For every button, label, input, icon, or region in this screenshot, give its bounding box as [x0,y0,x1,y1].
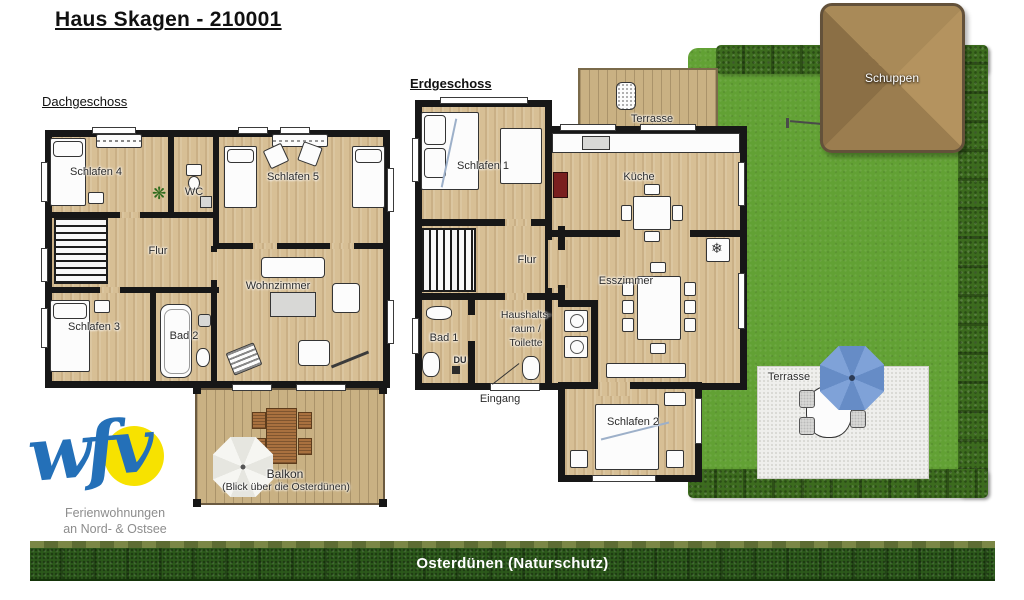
garden-terrasse-label: Terrasse [768,371,810,383]
room-label-schlafen-4: Schlafen 4 [70,166,122,178]
snowflake-icon: ❄ [711,240,723,257]
armchair [332,283,360,313]
pillow [53,303,87,319]
door-opening [100,287,120,293]
sofa [261,257,325,278]
side-table [664,392,686,406]
balkon-post [379,499,387,507]
toilet [422,352,440,377]
page-title: Haus Skagen - 210001 [55,8,282,32]
room-label-flur-dg: Flur [149,245,168,257]
garden-chair [799,417,815,435]
grill [616,82,636,110]
stairs [54,218,108,284]
room-label-wc: WC [185,186,203,198]
room-label-schlafen-3: Schlafen 3 [68,321,120,333]
garden-chair [799,390,815,408]
chair [650,262,666,273]
window [92,127,136,134]
terrace-door [738,162,745,206]
pillow [424,115,446,145]
window [387,168,394,212]
sideboard [606,363,686,378]
wall [50,287,219,293]
wall [690,230,740,237]
logo-caption-1: Ferienwohnungen [45,505,185,521]
door-opening [598,382,630,396]
balkon-chair [252,412,266,429]
toilet [186,164,202,176]
chair [644,184,660,195]
window [592,475,656,482]
garden-door [695,398,702,444]
room-label-bad-2: Bad 2 [170,330,199,342]
entrance-door [490,383,540,391]
nightstand [94,300,110,313]
room-label-flur-eg: Flur [518,254,537,266]
coffee-table [270,292,316,317]
garden-chair [850,410,866,428]
room-label-haushalt-3: Toilette [509,337,542,349]
wall [552,230,620,237]
dryer-door [570,340,584,354]
kitchen-counter [552,133,740,153]
pillow [227,149,254,163]
nightstand [88,192,104,204]
window [41,248,48,282]
wall [213,135,219,246]
toilet [196,348,210,367]
window [440,97,528,104]
sink [198,314,211,327]
chair [644,231,660,242]
room-label-schlafen-5: Schlafen 5 [267,171,319,183]
kitchen-table [633,196,671,230]
door-opening [120,212,140,218]
door-opening [253,243,277,249]
banner-hedge-top [30,541,995,548]
balkon-chair [298,412,312,429]
chair [684,318,696,332]
chair [672,205,683,221]
balkon-chair [298,438,312,455]
chair [622,300,634,314]
door-opening [505,219,531,226]
wardrobe [96,134,142,148]
sink [426,306,452,320]
room-label-kueche: Küche [623,171,654,183]
kitchen-sink [582,136,610,150]
plant-icon: ❋ [152,184,166,204]
toilet [522,356,540,380]
door-opening [330,243,354,249]
door-opening [211,252,217,280]
door-opening [468,315,475,341]
balkon-post [193,499,201,507]
window [560,124,616,131]
dachgeschoss-heading: Dachgeschoss [42,94,127,109]
armchair [298,340,330,366]
room-label-wohnzimmer: Wohnzimmer [246,280,311,292]
room-label-bad-1: Bad 1 [430,332,459,344]
chair [621,205,632,221]
schuppen-label: Schuppen [865,71,919,85]
window [412,138,419,182]
shower-icon [452,366,460,374]
du-label: DU [454,355,467,365]
balkon-sublabel: (Blick über die Osterdünen) [222,481,350,493]
room-label-haushalt-1: Haushalts- [501,309,551,321]
logo-caption-2: an Nord- & Ostsee [45,521,185,537]
wall [591,300,598,383]
nightstand [570,450,588,468]
balkon-label: Balkon [267,467,304,481]
window [387,300,394,344]
pillow [355,149,382,163]
window [41,162,48,202]
chair [650,343,666,354]
window [41,308,48,348]
room-label-haushalt-2: raum / [511,323,541,335]
washer-door [570,314,584,328]
window [232,384,272,391]
room-label-esszimmer: Esszimmer [599,275,653,287]
chair [622,318,634,332]
garden-umbrella-icon [820,346,884,410]
wardrobe [500,128,542,184]
wall [168,135,174,215]
clothesline-pole [786,118,789,128]
eingang-label: Eingang [480,393,520,405]
room-label-schlafen-2: Schlafen 2 [607,416,659,428]
logo-wordmark: wfv [25,409,152,493]
wall [150,290,156,385]
window [238,127,268,134]
banner-label: Osterdünen (Naturschutz) [416,555,608,572]
stairs [422,228,476,292]
floorplan-canvas: Terrasse Schuppen Haus Skagen - 210001 D… [0,0,1024,600]
erdgeschoss-heading: Erdgeschoss [410,76,492,91]
pillow [53,141,83,157]
balcony-door [296,384,346,391]
nightstand [666,450,684,468]
wall [213,243,387,249]
wall [468,300,475,383]
banner-hedge: Osterdünen (Naturschutz) [30,548,995,581]
stove [553,172,568,198]
chair [684,282,696,296]
wall [422,293,565,300]
door-opening [505,293,527,300]
chair [684,300,696,314]
room-label-schlafen-1: Schlafen 1 [457,160,509,172]
window [412,318,419,354]
terrace-door [738,273,745,329]
window [640,124,696,131]
window [280,127,310,134]
